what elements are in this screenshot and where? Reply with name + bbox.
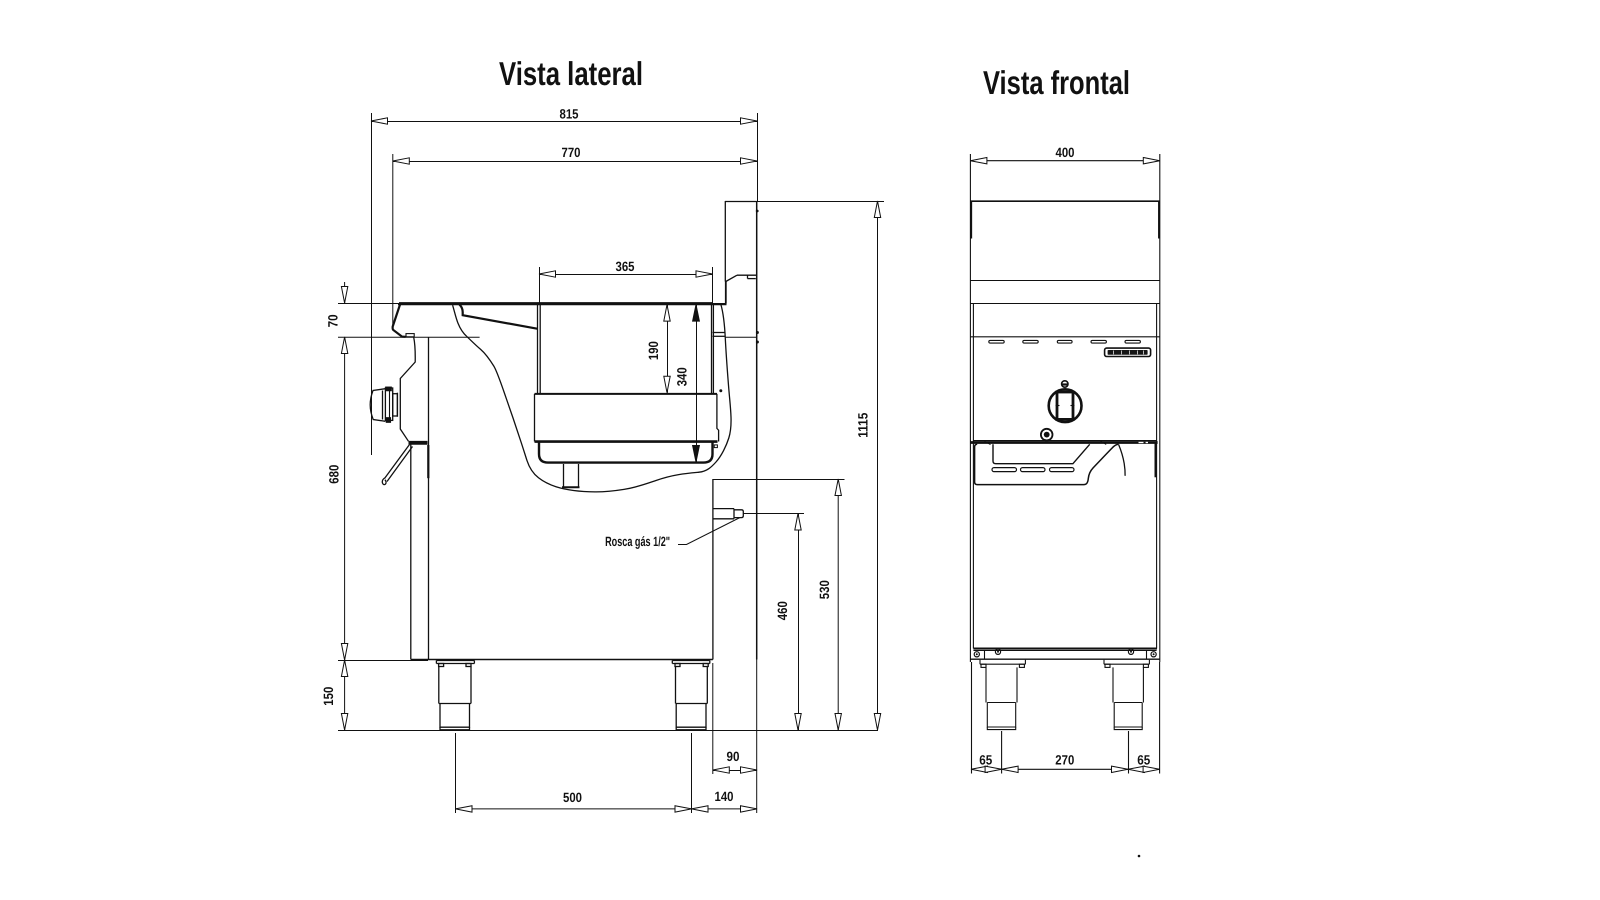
svg-text:Vista frontal: Vista frontal xyxy=(983,64,1130,101)
svg-text:1115: 1115 xyxy=(855,412,870,437)
svg-text:90: 90 xyxy=(727,749,740,764)
svg-text:Vista lateral: Vista lateral xyxy=(499,55,643,92)
svg-text:70: 70 xyxy=(326,314,341,327)
svg-text:Rosca gás 1/2": Rosca gás 1/2" xyxy=(605,534,670,549)
svg-text:530: 530 xyxy=(817,580,832,599)
svg-text:770: 770 xyxy=(562,145,581,160)
svg-text:270: 270 xyxy=(1055,753,1074,768)
svg-text:460: 460 xyxy=(775,601,790,620)
svg-text:190: 190 xyxy=(646,341,661,360)
svg-text:815: 815 xyxy=(560,107,579,122)
svg-text:365: 365 xyxy=(616,259,635,274)
svg-text:65: 65 xyxy=(1137,753,1150,768)
svg-text:150: 150 xyxy=(321,687,336,706)
svg-text:340: 340 xyxy=(674,367,689,386)
svg-text:65: 65 xyxy=(979,753,992,768)
svg-text:500: 500 xyxy=(563,790,582,805)
svg-text:680: 680 xyxy=(326,465,341,484)
svg-text:400: 400 xyxy=(1056,145,1075,160)
svg-text:140: 140 xyxy=(715,789,734,804)
